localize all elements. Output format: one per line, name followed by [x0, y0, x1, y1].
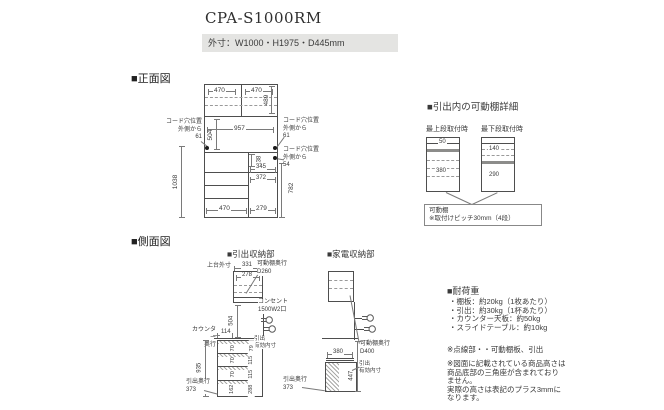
dim-line-upper-height [271, 86, 272, 114]
dim-upper-depth: 331 [241, 262, 253, 270]
slide-table-line [326, 360, 354, 361]
drawer-front-line [205, 185, 248, 186]
dim-top-mount-above: 50 [438, 139, 447, 147]
dim-top-mount-below: 380 [435, 168, 447, 176]
outlet-plug-icon [362, 314, 374, 322]
dim-drawer-inner-4: 162 [229, 382, 236, 396]
side-view-section-label: ■側面図 [131, 236, 171, 248]
slide-table-line [326, 358, 354, 359]
movable-shelf-dashed-line [329, 280, 353, 281]
dim-open-width: 957 [233, 125, 246, 133]
shelf-depth-label: 可動棚奥行 D260 [257, 261, 293, 276]
product-title: CPA-S1000RM [205, 9, 322, 27]
dim-line-open-height [216, 119, 217, 150]
dim-top-right-width: 470 [250, 87, 263, 95]
cord-hole-dot [273, 156, 277, 160]
appliance-unit-label: ■家電収納部 [327, 249, 375, 259]
shelf-pitch-dashed-line [427, 160, 459, 161]
front-view-section-label: ■正面図 [131, 73, 171, 85]
dim-appliance-height: 447 [348, 368, 356, 384]
movable-shelf-bar [427, 149, 459, 152]
outlet-plug-icon [264, 325, 276, 333]
dim-slide-depth: 380 [332, 349, 344, 357]
drawer-inner-label: 引出 有効内寸 [254, 336, 282, 349]
dim-upper-inner-depth: 278 [241, 272, 253, 280]
dim-drawer-inner-3: 70 [230, 367, 237, 381]
cord-hole-label-left: コード穴位置 外側から 61 [156, 119, 202, 142]
dim-line-gap-height [251, 154, 252, 167]
movable-shelf-note-box: 可動棚 ※取付けピッチ30mm（4段） [424, 204, 542, 226]
drawer-depth-label: 引出奥行 373 [283, 377, 313, 392]
dim-inner-width: 372 [255, 175, 267, 183]
fixed-shelf-line [234, 297, 262, 298]
drawer-unit-label: ■引出収納部 [227, 249, 275, 259]
bottom-mount-label: 最下段取付時 [481, 126, 523, 134]
dim-bottom-left-width: 470 [218, 205, 231, 213]
cabinet-top-line [482, 143, 514, 144]
spec-sheet: CPA-S1000RM 外寸：W1000・H1975・D445mm ■正面図 4… [0, 0, 664, 410]
shelf-pitch-dashed-line [427, 176, 459, 177]
dotted-line-note: ※点線部・・可動棚板、引出 [447, 346, 543, 355]
counter-top-line [322, 338, 358, 339]
movable-shelf-dashed-line [234, 285, 262, 286]
outlet-label: コンセント 1500W2口 [258, 299, 298, 314]
dim-open-height: 504 [207, 127, 215, 143]
dim-open-height-side: 504 [228, 313, 236, 329]
dim-counter-front: 114 [220, 329, 232, 337]
dim-lower-height: 1038 [172, 172, 180, 192]
dim-bottom-right-width: 279 [255, 205, 268, 213]
movable-shelf-dashed-line [234, 292, 262, 293]
height-remark-note: ※図面に記載されている商品高さは 商品底部の三角座が含まれており ません。 実際… [447, 360, 577, 403]
outlet-plug-icon [364, 325, 376, 333]
dim-right-height: 782 [288, 180, 296, 196]
shelf-depth-label: 可動棚奥行 D400 [360, 341, 396, 356]
dim-upper-height: 489 [263, 92, 271, 108]
dim-line-open-height-side [237, 305, 238, 338]
front-lower-divider-line [248, 153, 249, 217]
counter-depth-label: カウンター 奥行 [190, 327, 216, 350]
dim-bottom-mount-below: 290 [488, 172, 500, 180]
dim-top-left-width: 470 [213, 87, 226, 95]
movable-shelf-dashed-line [329, 288, 353, 289]
shelf-detail-section-label: ■引出内の可動棚詳細 [427, 102, 518, 113]
dim-drawer-opening-3: 115 [248, 366, 255, 382]
drawer-inner-label: 引出 有効内寸 [359, 361, 387, 374]
cord-hole-dot [205, 146, 209, 150]
outer-dimensions-box: 外寸：W1000・H1975・D445mm [202, 34, 398, 52]
cord-hole-label-right-top: コード穴位置 外側から 61 [283, 118, 329, 141]
drawer-hatch [326, 363, 339, 391]
drawer-front-line [205, 172, 248, 173]
dim-line-lower-height [181, 146, 182, 218]
dim-drawer-inner-2: 70 [230, 353, 237, 367]
cord-hole-dot [273, 146, 277, 150]
drawer-front-line [205, 198, 248, 199]
movable-shelf-bar [482, 161, 514, 164]
dim-line-appliance-height [357, 341, 358, 392]
dim-line-right-height [281, 163, 282, 218]
slide-table-line [249, 172, 277, 173]
load-capacity-title: ■耐荷重 [447, 286, 479, 296]
outlet-plug-icon [261, 316, 273, 324]
front-upper-divider-line [241, 85, 242, 116]
shelf-pitch-dashed-line [482, 155, 514, 156]
cord-hole-label-right-bottom: コード穴位置 外側から 54 [283, 147, 329, 170]
dim-drawer-opening-4: 288 [248, 381, 255, 397]
dim-bottom-mount-above: 140 [488, 146, 500, 154]
load-capacity-item: ・スライドテーブル：約10kg [449, 324, 547, 333]
top-mount-label: 最上段取付時 [426, 126, 468, 134]
dim-slide-width: 345 [255, 164, 267, 172]
upper-outer-label: 上台外寸 [197, 263, 231, 271]
dim-total-height: 935 [196, 360, 204, 376]
